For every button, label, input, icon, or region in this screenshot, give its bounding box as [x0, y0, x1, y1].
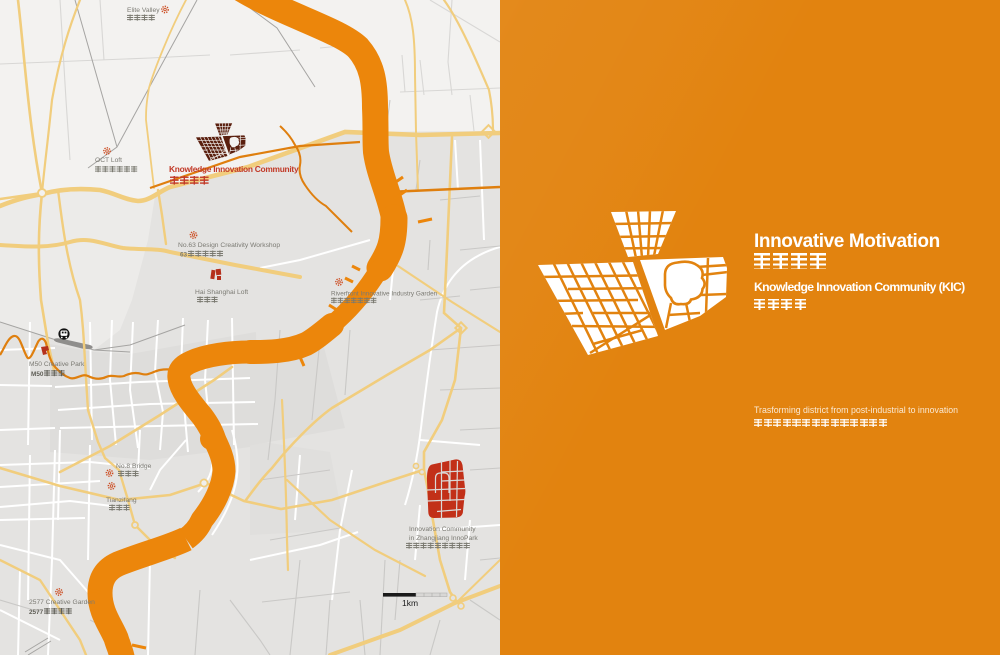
- svg-text:Riverfront Innovative Industry: Riverfront Innovative Industry Garden: [331, 291, 438, 298]
- svg-text:Knowledge Innovation Community: Knowledge Innovation Community: [169, 164, 299, 174]
- svg-text:M50: M50: [31, 371, 44, 378]
- svg-text:M50 Creative Park: M50 Creative Park: [29, 361, 85, 368]
- svg-text:No.63 Design Creativity Worksh: No.63 Design Creativity Workshop: [178, 242, 280, 249]
- svg-text:Elite Valley: Elite Valley: [127, 7, 160, 14]
- svg-text:No.8 Bridge: No.8 Bridge: [116, 463, 152, 470]
- svg-text:63: 63: [180, 252, 188, 259]
- svg-text:OCT Loft: OCT Loft: [95, 157, 122, 164]
- svg-text:Innovation Community: Innovation Community: [409, 526, 476, 533]
- svg-text:in Zhangjiang InnoPark: in Zhangjiang InnoPark: [409, 535, 478, 542]
- svg-text:1km: 1km: [402, 598, 418, 608]
- svg-text:2577: 2577: [29, 609, 44, 616]
- svg-text:Tianzifang: Tianzifang: [106, 497, 137, 504]
- svg-text:Hai Shanghai Loft: Hai Shanghai Loft: [195, 289, 248, 296]
- svg-text:2577 Creative Garden: 2577 Creative Garden: [29, 599, 95, 606]
